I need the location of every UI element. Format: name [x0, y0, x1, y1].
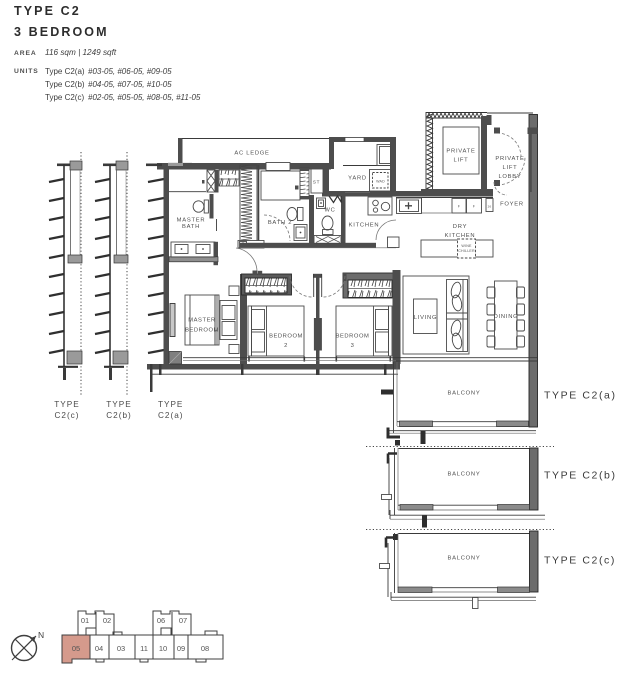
svg-text:LIFT: LIFT — [454, 158, 469, 164]
svg-text:BEDROOM: BEDROOM — [269, 334, 303, 340]
svg-text:Type C2(b): Type C2(b) — [45, 80, 85, 89]
svg-text:08: 08 — [201, 644, 209, 653]
svg-text:11: 11 — [140, 644, 148, 653]
svg-text:TYPE: TYPE — [54, 400, 79, 409]
svg-text:01: 01 — [81, 616, 89, 625]
svg-text:TYPE: TYPE — [106, 400, 131, 409]
svg-text:BEDROOM: BEDROOM — [185, 328, 219, 334]
svg-text:LIVING: LIVING — [414, 315, 438, 321]
svg-text:116 sqm | 1249 sqft: 116 sqm | 1249 sqft — [45, 48, 117, 57]
svg-text:3 BEDROOM: 3 BEDROOM — [14, 25, 109, 39]
svg-text:TYPE C2(a): TYPE C2(a) — [544, 390, 617, 402]
svg-text:10: 10 — [159, 644, 167, 653]
svg-text:TYPE C2: TYPE C2 — [14, 4, 81, 18]
svg-text:CHILLER: CHILLER — [458, 249, 475, 253]
svg-text:BALCONY: BALCONY — [448, 556, 481, 562]
svg-text:#04-05, #07-05, #10-05: #04-05, #07-05, #10-05 — [88, 80, 172, 89]
svg-text:F: F — [458, 205, 461, 209]
svg-text:LOBBY: LOBBY — [498, 174, 521, 180]
svg-text:3: 3 — [351, 343, 355, 349]
svg-text:C2(c): C2(c) — [54, 411, 79, 420]
svg-text:#03-05, #06-05, #09-05: #03-05, #06-05, #09-05 — [88, 67, 172, 76]
svg-text:ST: ST — [313, 180, 320, 185]
svg-text:BEDROOM: BEDROOM — [336, 334, 370, 340]
svg-text:WINE: WINE — [461, 244, 472, 248]
svg-text:TYPE C2(b): TYPE C2(b) — [544, 470, 617, 482]
svg-text:04: 04 — [95, 644, 103, 653]
svg-text:AC LEDGE: AC LEDGE — [234, 151, 269, 157]
svg-text:LIFT: LIFT — [503, 165, 518, 171]
svg-text:DRY: DRY — [453, 224, 467, 230]
svg-text:TYPE: TYPE — [158, 400, 183, 409]
svg-text:PRIVATE: PRIVATE — [446, 149, 475, 155]
svg-text:2: 2 — [284, 343, 288, 349]
svg-text:YARD: YARD — [348, 176, 367, 182]
svg-text:UNITS: UNITS — [14, 68, 39, 75]
svg-text:BATH: BATH — [182, 224, 200, 230]
svg-text:FOYER: FOYER — [500, 202, 524, 208]
svg-text:09: 09 — [177, 644, 185, 653]
svg-text:02: 02 — [103, 616, 111, 625]
svg-text:PRIVATE: PRIVATE — [495, 156, 524, 162]
svg-text:26: 26 — [488, 205, 492, 209]
svg-text:BALCONY: BALCONY — [448, 472, 481, 478]
svg-text:C2(a): C2(a) — [158, 411, 183, 420]
svg-text:Type C2(a): Type C2(a) — [45, 67, 85, 76]
svg-text:AREA: AREA — [14, 50, 37, 57]
svg-text:MASTER: MASTER — [177, 217, 206, 223]
svg-text:Type C2(c): Type C2(c) — [45, 93, 84, 102]
svg-text:C2(b): C2(b) — [106, 411, 131, 420]
svg-text:BATH 2: BATH 2 — [268, 220, 292, 226]
svg-text:#02-05, #05-05, #08-05, #11-05: #02-05, #05-05, #08-05, #11-05 — [88, 93, 201, 102]
svg-text:KITCHEN: KITCHEN — [349, 223, 380, 229]
svg-text:05: 05 — [72, 644, 80, 653]
svg-text:07: 07 — [179, 616, 187, 625]
svg-text:MASTER: MASTER — [188, 318, 215, 324]
svg-text:DINING: DINING — [494, 314, 519, 320]
svg-text:KITCHEN: KITCHEN — [445, 233, 476, 239]
svg-text:03: 03 — [117, 644, 125, 653]
svg-text:N: N — [38, 630, 44, 640]
svg-text:TYPE C2(c): TYPE C2(c) — [544, 555, 616, 567]
svg-text:BALCONY: BALCONY — [448, 391, 481, 397]
svg-text:06: 06 — [157, 616, 165, 625]
svg-text:WC: WC — [324, 208, 335, 214]
svg-text:WAD: WAD — [376, 180, 385, 184]
svg-text:F: F — [473, 205, 476, 209]
